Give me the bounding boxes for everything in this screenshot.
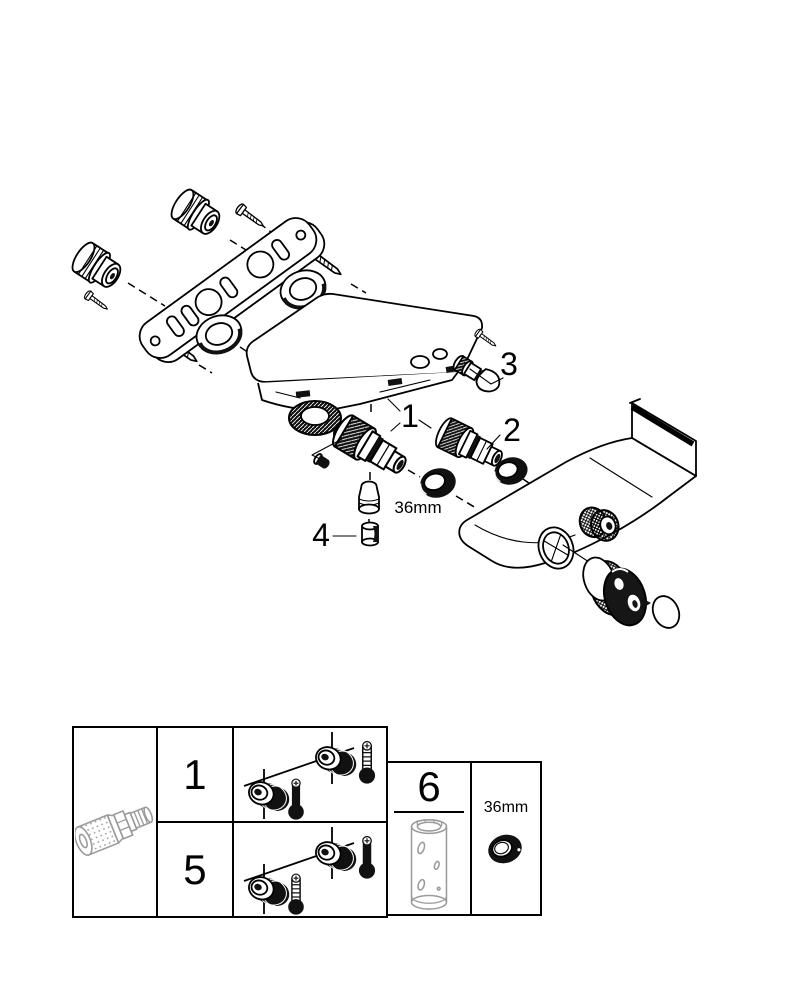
parts-diagram-page: 1 2 3 4 36mm (0, 0, 792, 1000)
callout-4: 4 (312, 517, 330, 553)
variant-5-figure-cell (234, 823, 386, 916)
tool-6-cell: 6 (388, 763, 472, 914)
wall-union-fitting-top (167, 186, 225, 241)
ring-nut-figure (472, 821, 540, 879)
mounting-screw-tiny (83, 290, 110, 313)
aerator-plug-upper (359, 482, 379, 514)
variant-5-label: 5 (158, 823, 232, 916)
callout-2: 2 (503, 412, 521, 448)
variant-figure-column (234, 728, 386, 916)
ring-size-text: 36mm (484, 799, 528, 817)
tool-6-label: 6 (417, 765, 440, 809)
legend-table: 1 5 (72, 726, 388, 918)
tool-table: 6 36mm (386, 761, 542, 916)
check-valves-variant-5-figure (234, 824, 386, 916)
exploded-parts-drawing: 1 2 3 4 36mm (0, 0, 792, 700)
control-knob (578, 553, 653, 630)
callout-3: 3 (500, 346, 518, 382)
variant-1-label: 1 (158, 728, 232, 823)
ring-size-cell: 36mm (472, 763, 540, 914)
check-valves-variant-1-figure (234, 729, 386, 821)
knob-cap (648, 592, 684, 632)
aerator-plug-lower (362, 523, 378, 546)
mounting-sleeve-figure (388, 813, 470, 914)
ring-size-label: 36mm (394, 498, 441, 517)
grub-screw (312, 453, 331, 471)
ring-nut-36mm-left (417, 464, 459, 501)
check-valve-cartridge-right (432, 416, 507, 475)
wall-union-fitting-bottom (68, 239, 126, 294)
variant-number-column: 1 5 (158, 728, 234, 916)
mounting-screw-short (234, 203, 266, 231)
wall-bracket (459, 399, 696, 568)
adapter-part-figure (75, 729, 155, 915)
variant-1-figure-cell (234, 728, 386, 823)
callout-1: 1 (401, 398, 419, 434)
adapter-part-cell (74, 728, 158, 916)
